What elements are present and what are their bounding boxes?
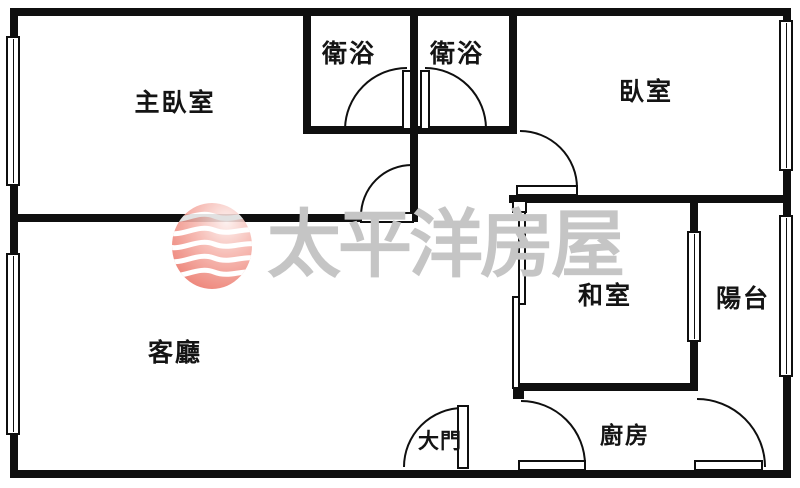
door-arc-bathroom-1 [345,68,407,130]
door-leaf-kitchen-left [518,460,586,471]
room-label-living-room: 客廳 [148,333,202,369]
room-label-main-entrance: 大門 [418,425,462,455]
floor-plan: 太平洋房屋 主臥室 衛浴 衛浴 臥室 和室 陽台 客廳 大門 廚房 [0,0,800,488]
door-arc-bathroom-2 [425,68,486,129]
pacific-house-logo-icon [170,201,254,291]
watermark-text: 太平洋房屋 [267,205,622,287]
room-label-master-bedroom: 主臥室 [134,83,215,119]
room-label-kitchen: 廚房 [600,416,650,450]
room-label-tatami-room: 和室 [578,276,632,312]
room-label-bathroom-1: 衛浴 [322,34,376,70]
door-leaf-kitchen-right [694,460,763,471]
door-arc-kitchen-left [521,401,585,465]
room-label-balcony: 陽台 [716,279,770,315]
door-leaf-bedroom [516,185,578,196]
door-leaf-bathroom-1 [402,70,412,130]
door-arc-bedroom [520,131,577,188]
room-label-bathroom-2: 衛浴 [430,34,484,70]
door-leaf-bathroom-2 [420,70,430,130]
door-arc-kitchen-right [697,399,765,467]
room-label-bedroom: 臥室 [619,72,673,108]
